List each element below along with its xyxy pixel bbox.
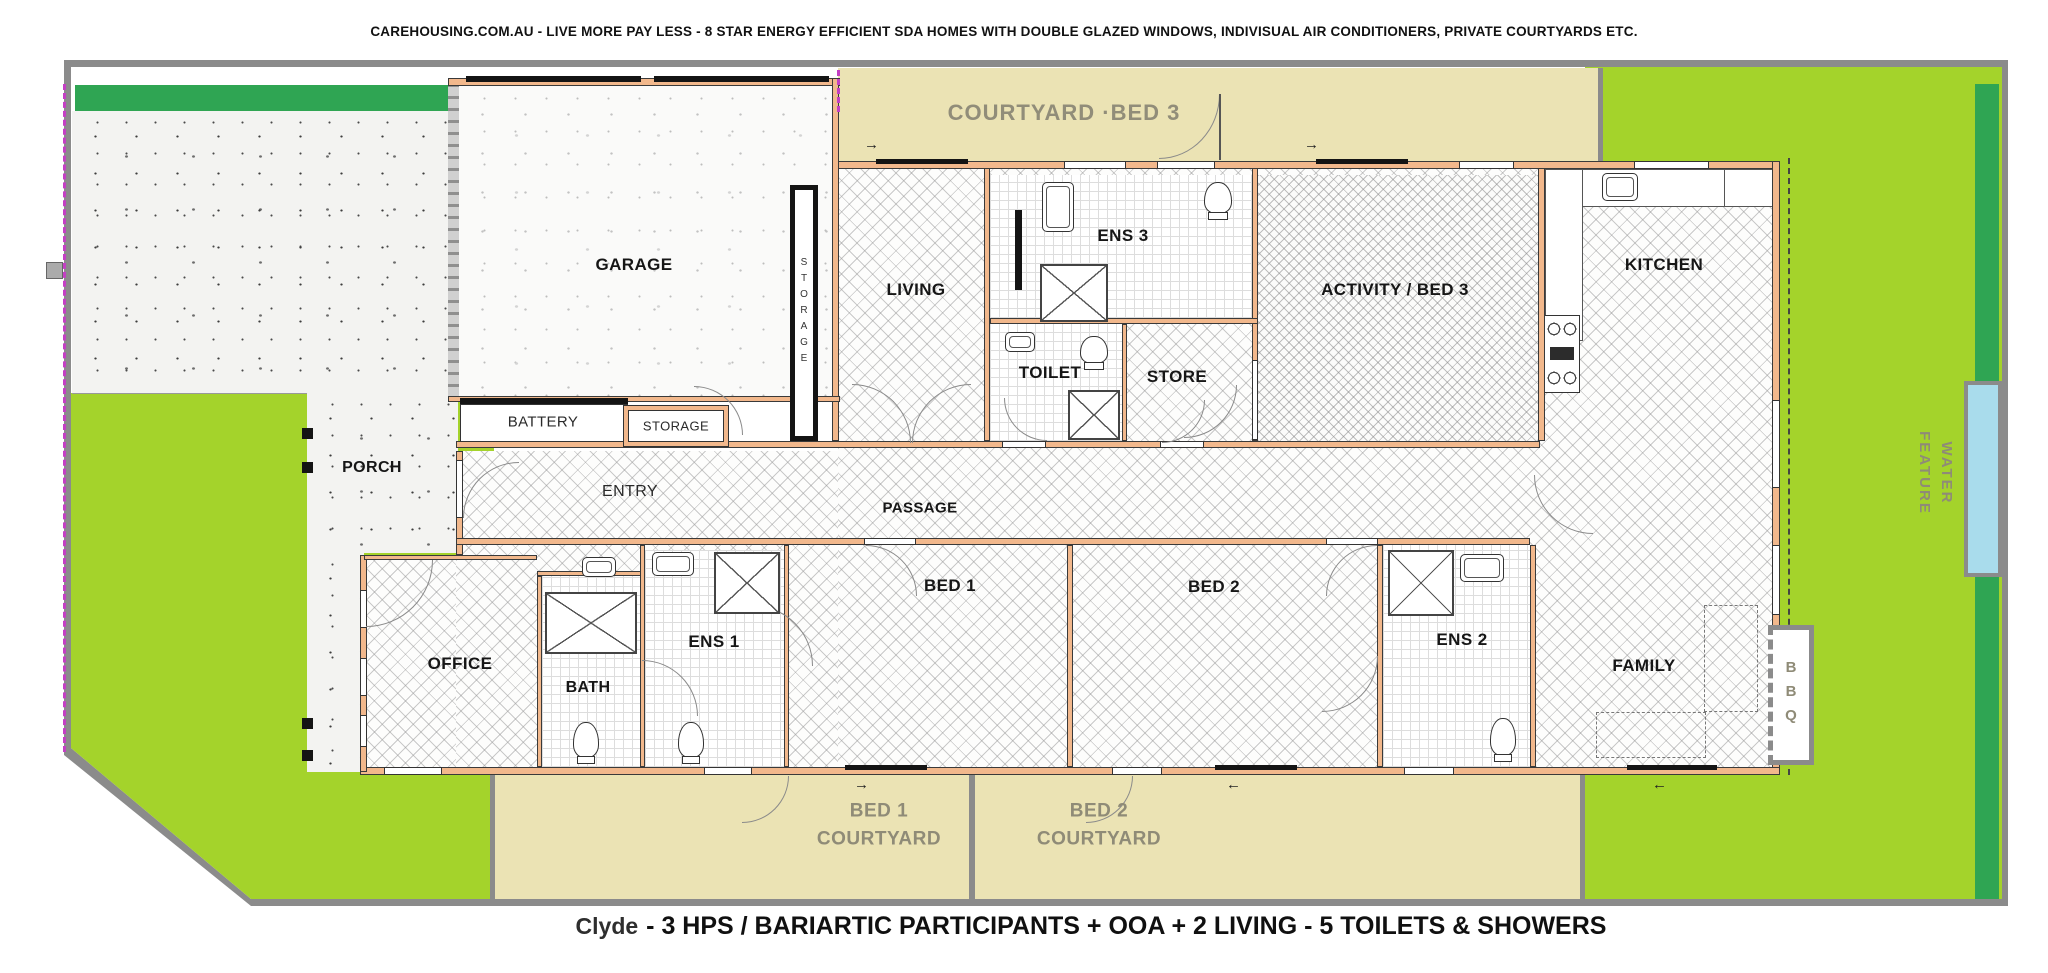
wall-activity-kitchen	[1538, 168, 1545, 441]
shower-bath-icon	[545, 592, 637, 654]
wall-toilet-store	[1122, 324, 1127, 441]
garage-floor	[456, 86, 832, 396]
porch-post-3	[302, 718, 313, 729]
shower-toilet-icon	[1068, 390, 1120, 440]
shower-ens1-icon	[714, 552, 780, 614]
label-family: FAMILY	[1612, 656, 1675, 676]
label-bed1-courtyard: BED 1 COURTYARD	[817, 797, 941, 852]
toilet-toilet-icon	[1080, 336, 1108, 364]
slider-activity	[1316, 159, 1408, 164]
cooktop-icon	[1544, 315, 1580, 393]
label-bed2: BED 2	[1188, 577, 1240, 597]
slide-arrow-icon: →	[1304, 136, 1319, 153]
letterbox	[46, 262, 63, 279]
sink-ens1-icon	[652, 552, 694, 576]
label-water-feature: WATER FEATURE	[1911, 393, 1957, 553]
boundary-dash-west	[63, 84, 66, 752]
window-office-west-3	[360, 715, 367, 747]
window-bath-south	[704, 767, 752, 775]
shower-ens2-icon	[1388, 550, 1454, 616]
door-gap-courtyard-north	[1157, 161, 1215, 169]
wall-garage-west	[448, 86, 459, 396]
ens3-nib-wall	[1015, 210, 1022, 290]
courtyard-fence-right	[1580, 772, 1585, 899]
sink-ens3-icon	[1042, 182, 1074, 232]
water-feature-line1: WATER	[1935, 393, 1957, 553]
window-family-east	[1772, 545, 1780, 615]
porch-post-2	[302, 462, 313, 473]
wall-bed1-bed2	[1067, 545, 1073, 767]
garage-door-panel-1	[466, 76, 641, 82]
label-living: LIVING	[886, 280, 945, 300]
door-gap-activity	[1252, 360, 1258, 440]
label-ens1: ENS 1	[688, 632, 739, 652]
wall-office-bath	[537, 576, 542, 767]
water-feature-line2: FEATURE	[1914, 393, 1936, 553]
wall-passage-north	[456, 441, 1540, 448]
door-gap-entry	[456, 460, 463, 518]
sink-toilet-icon	[1005, 332, 1035, 352]
porch-post-4	[302, 750, 313, 761]
slider-bed2	[1215, 765, 1297, 770]
label-battery: BATTERY	[508, 414, 579, 431]
bbq-area: BBQ	[1768, 625, 1814, 765]
label-bed2-courtyard: BED 2 COURTYARD	[1037, 797, 1161, 852]
door-gap-toilet	[1002, 441, 1046, 448]
storage-tall-label: STORAGE	[799, 257, 810, 369]
porch-paving-lower	[307, 553, 364, 772]
wall-garage-east	[832, 78, 839, 441]
bed1-courtyard-line2: COURTYARD	[817, 825, 941, 853]
wall-main-bottom	[360, 767, 1780, 775]
wall-ens2-family	[1530, 545, 1536, 767]
window-activity-north	[1459, 161, 1514, 169]
driveway	[72, 111, 455, 394]
label-store: STORE	[1147, 367, 1207, 387]
label-office: OFFICE	[428, 654, 493, 674]
toilet-bath-icon	[573, 722, 599, 758]
plan-name: Clyde	[576, 913, 639, 939]
label-passage: PASSAGE	[882, 500, 957, 517]
slide-arrow-icon: ←	[1652, 776, 1667, 793]
wall-bath-ens1	[640, 545, 645, 767]
bbq-label: BBQ	[1783, 659, 1800, 731]
slider-living	[876, 159, 968, 164]
site-plan: STORAGE	[64, 60, 2008, 906]
label-bath: BATH	[566, 679, 611, 697]
label-porch: PORCH	[342, 459, 402, 477]
window-kitchen-east	[1772, 400, 1780, 488]
bed1-courtyard-line1: BED 1	[817, 797, 941, 825]
courtyard-bed3-fence	[1598, 68, 1603, 168]
shower-ens3-icon	[1040, 264, 1108, 322]
water-feature	[1964, 381, 2002, 577]
label-ens2: ENS 2	[1436, 630, 1487, 650]
label-storage-small: STORAGE	[643, 419, 709, 434]
courtyard-fence-middle	[969, 772, 975, 899]
plan-description: - 3 HPS / BARIARTIC PARTICIPANTS + OOA +…	[646, 912, 1606, 940]
label-activity-bed3: ACTIVITY / BED 3	[1321, 280, 1469, 300]
window-kitchen-north	[1634, 161, 1709, 169]
sink-ens2-icon	[1460, 554, 1504, 582]
garage-door-panel-2	[654, 76, 829, 82]
family-couch-south	[1596, 712, 1706, 758]
slide-arrow-icon: →	[854, 776, 869, 793]
toilet-ens2-icon	[1490, 718, 1516, 756]
window-ens2-south	[1404, 767, 1454, 775]
slide-arrow-icon: ←	[1226, 776, 1241, 793]
toilet-ens1-icon	[678, 722, 704, 758]
door-gap-bed2	[1326, 538, 1378, 545]
front-hedge-strip	[75, 85, 448, 111]
page-header-tagline: CAREHOUSING.COM.AU - LIVE MORE PAY LESS …	[64, 24, 1944, 39]
activity-floor	[1258, 175, 1538, 441]
floor-plan-page: CAREHOUSING.COM.AU - LIVE MORE PAY LESS …	[0, 0, 2048, 973]
bed2-courtyard-line1: BED 2	[1037, 797, 1161, 825]
label-kitchen: KITCHEN	[1625, 255, 1703, 275]
toilet-ens3-icon	[1204, 182, 1232, 214]
label-bed1: BED 1	[924, 576, 976, 596]
door-leaf-courtyard-north	[1219, 94, 1221, 160]
boundary-dash-courtyard	[837, 70, 840, 112]
plan-title: Clyde- 3 HPS / BARIARTIC PARTICIPANTS + …	[64, 912, 2008, 941]
label-toilet: TOILET	[1019, 363, 1082, 383]
porch-post-1	[302, 428, 313, 439]
slide-arrow-icon: →	[864, 136, 879, 153]
kitchen-sink-icon	[1602, 173, 1638, 201]
window-office-west-2	[360, 658, 367, 696]
wall-living-ens3	[984, 168, 990, 441]
sink-bath-icon	[582, 557, 616, 577]
slider-family	[1627, 765, 1717, 770]
label-ens3: ENS 3	[1097, 226, 1148, 246]
bed2-courtyard-line2: COURTYARD	[1037, 825, 1161, 853]
courtyard-fence-left	[490, 772, 495, 899]
label-entry: ENTRY	[602, 483, 658, 501]
label-garage: GARAGE	[595, 255, 672, 275]
label-courtyard-bed3: COURTYARD ·BED 3	[948, 100, 1181, 126]
window-ens3-north	[1064, 161, 1126, 169]
slider-bed1	[845, 765, 927, 770]
kitchen-pantry	[1724, 169, 1774, 207]
window-office-south	[384, 767, 442, 775]
storage-tall-closet: STORAGE	[790, 185, 818, 441]
window-bed1-south	[1112, 767, 1162, 775]
door-gap-bed1	[864, 538, 916, 545]
family-couch-east	[1704, 605, 1758, 712]
